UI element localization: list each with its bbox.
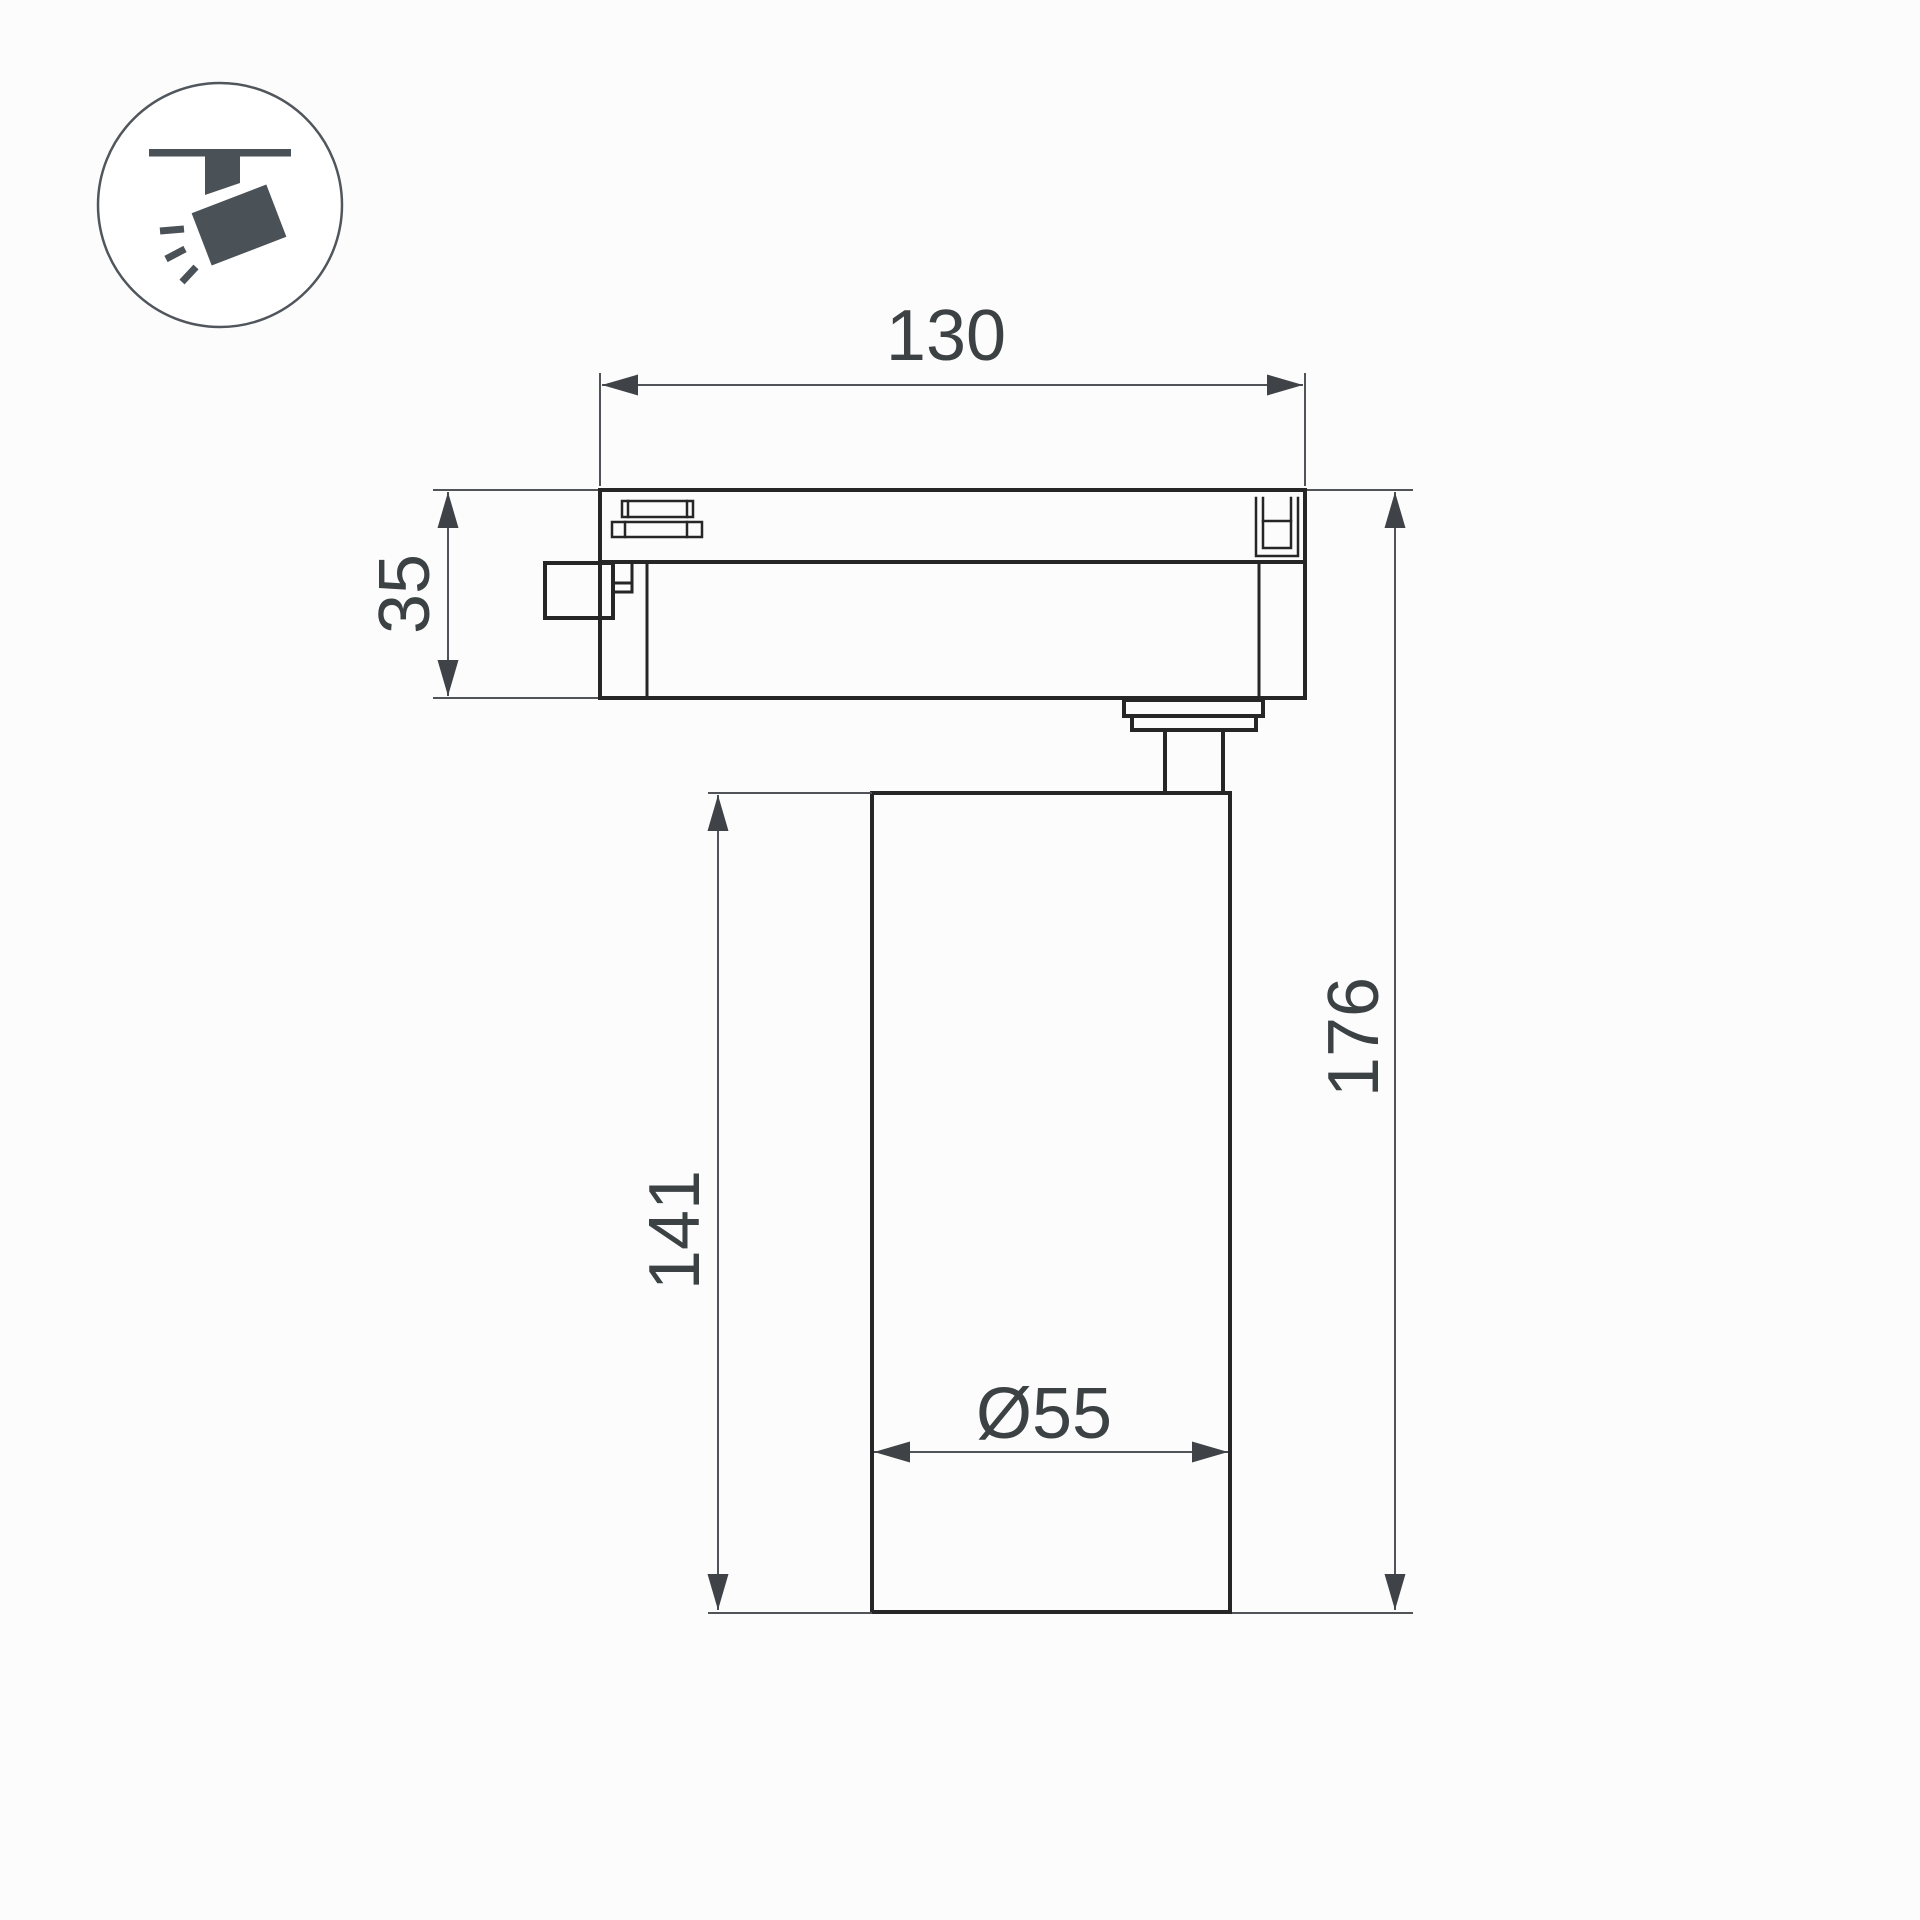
dimension-lines <box>433 373 1413 1613</box>
dim-label-diameter: Ø55 <box>976 1374 1112 1454</box>
dim-label-35: 35 <box>365 554 445 634</box>
stem-neck <box>1165 730 1223 793</box>
dim-label-141: 141 <box>635 1170 715 1290</box>
selector-step-ledge <box>613 583 632 592</box>
stem-flange-lower <box>1132 716 1256 730</box>
track-adapter-body <box>600 490 1305 698</box>
fixture-outline <box>545 490 1305 1612</box>
drawing-canvas: 130 35 141 176 Ø55 <box>0 0 1920 1920</box>
lamp-cylinder-body <box>872 793 1230 1612</box>
stem-flange-upper <box>1124 700 1263 716</box>
locking-clip <box>1256 498 1298 556</box>
phase-selector-box <box>545 563 613 618</box>
technical-drawing: 130 35 141 176 Ø55 <box>0 0 1920 1920</box>
dim-label-176: 176 <box>1314 977 1394 1097</box>
track-contact-blocks <box>612 501 702 537</box>
icon-ceiling-bar <box>149 149 291 157</box>
dimension-arrowheads <box>438 375 1406 1611</box>
track-spotlight-icon <box>98 83 342 327</box>
dimension-labels: 130 35 141 176 Ø55 <box>365 296 1394 1454</box>
dim-label-130: 130 <box>886 296 1006 376</box>
